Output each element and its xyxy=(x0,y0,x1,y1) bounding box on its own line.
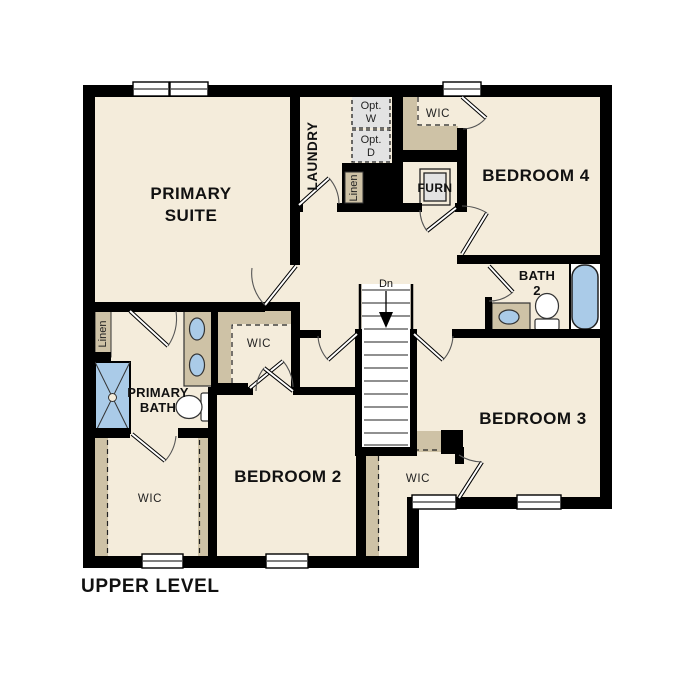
window xyxy=(443,82,481,96)
label-opt-dryer-2: D xyxy=(367,147,375,159)
room-label-primary-bath-2: BATH xyxy=(140,400,176,415)
room-label-bedroom4: BEDROOM 4 xyxy=(482,166,590,185)
room-label-bedroom2: BEDROOM 2 xyxy=(234,467,341,486)
label-opt-washer-2: W xyxy=(366,113,377,125)
room-label-wic-bedroom3: WIC xyxy=(406,473,430,485)
window xyxy=(133,82,169,96)
label-opt-dryer-1: Opt. xyxy=(361,134,382,146)
sink xyxy=(190,354,205,376)
floor-plan-page: PRIMARY SUITE LAUNDRY Opt. W Opt. D Line… xyxy=(0,0,687,687)
primary-bath-shower xyxy=(95,362,130,433)
label-furnace: FURN xyxy=(418,181,453,195)
window xyxy=(142,554,183,568)
sink xyxy=(190,318,205,340)
bath2-toilet xyxy=(535,294,559,331)
floor-plan-drawing: PRIMARY SUITE LAUNDRY Opt. W Opt. D Line… xyxy=(0,0,687,687)
window xyxy=(266,554,308,568)
room-label-primary-suite-1: PRIMARY xyxy=(150,184,231,203)
room-label-primary-bath-1: PRIMARY xyxy=(127,385,189,400)
label-opt-washer-1: Opt. xyxy=(361,100,382,112)
room-label-laundry: LAUNDRY xyxy=(305,122,320,191)
room-label-bedroom3: BEDROOM 3 xyxy=(479,409,586,428)
primary-bath-vanity xyxy=(184,307,212,386)
room-label-bath2-2: 2 xyxy=(533,283,541,298)
window xyxy=(412,495,456,509)
window xyxy=(517,495,561,509)
label-linen-hall: Linen xyxy=(97,321,109,348)
window xyxy=(170,82,208,96)
room-label-wic-primary: WIC xyxy=(247,338,271,350)
stairs-direction-label: Dn xyxy=(379,278,393,290)
plan-title: UPPER LEVEL xyxy=(81,576,220,597)
bath2-tub xyxy=(572,265,598,329)
room-label-wic-bedroom4: WIC xyxy=(426,108,450,120)
staircase xyxy=(360,284,412,447)
room-label-primary-suite-2: SUITE xyxy=(165,206,218,225)
room-label-bath2-1: BATH xyxy=(519,268,555,283)
label-linen-laundry: Linen xyxy=(348,175,360,202)
bath2-vanity xyxy=(492,303,530,331)
room-label-wic-bedroom2: WIC xyxy=(138,493,162,505)
sink xyxy=(499,310,519,324)
